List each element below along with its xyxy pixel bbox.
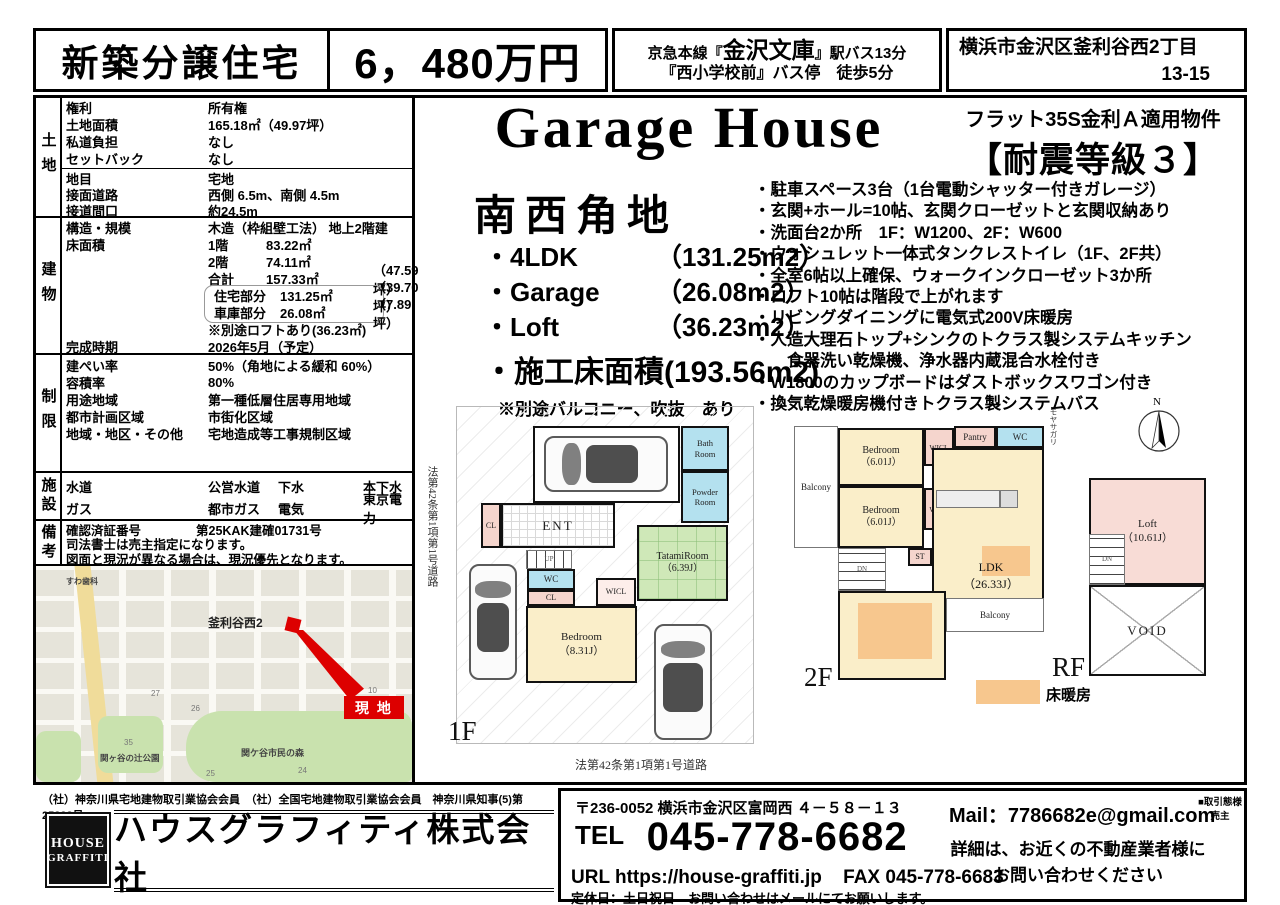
stairs-2f: DN [838, 548, 886, 591]
company-url: URL https://house-graffiti.jp [571, 867, 822, 888]
feature-item: 食器洗い乾燥機、浄水器内蔵混合水栓付き [754, 351, 1248, 372]
table-row: 権利所有権 [66, 99, 410, 116]
table-row: 建ぺい率50%（角地による緩和 60%） [66, 357, 410, 374]
map-number: 25 [206, 769, 215, 778]
inquiry-note: 詳細は、お近くの不動産業者様に お問い合わせください [949, 837, 1207, 888]
garage-house-title: Garage House [424, 94, 954, 161]
table-row: 用途地域第一種低層住居専用地域 [66, 391, 410, 408]
pantry-2f: Pantry [954, 426, 996, 448]
bathroom-1f: Bath Room [681, 426, 729, 471]
map-label-park: 関ヶ谷の辻公園 [100, 752, 160, 764]
location-map: すわ歯科 釜利谷西2 関ヶ谷の辻公園 関ケ谷市民の森 27 26 35 25 2… [36, 566, 412, 782]
north-label: N [1153, 396, 1161, 408]
bedroom-1f: Bedroom （8.31J） [526, 606, 637, 683]
table-row: 私道負担なし [66, 133, 410, 150]
map-number: 26 [191, 704, 200, 713]
void-rf: VOID [1089, 585, 1206, 676]
map-number: 10 [368, 686, 377, 695]
contact-box: 〒236-0052 横浜市金沢区富岡西 ４－５８－１３ TEL 045-778-… [558, 788, 1247, 902]
map-number: 24 [298, 766, 307, 775]
company-logo: HOUSE GRAFFITI [45, 812, 111, 888]
road-label-left: 法第42条第1項第1号道路 [424, 466, 440, 587]
map-site-label: 現 地 [344, 696, 404, 719]
table-row: 車庫部分26.08㎡（7.89坪） [66, 304, 410, 321]
feature-item: ・全室6帖以上確保、ウォークインクローゼット3か所 [754, 266, 1248, 287]
section-building: 建物 構造・規模木造（枠組壁工法） 地上2階建 床面積1階83.22㎡ 2階74… [36, 218, 412, 355]
tatami-room-1f: TatamiRoom （6.39J） [637, 525, 728, 601]
ldk-label: LDK （26.33J） [951, 560, 1031, 592]
price: 6，480万円 [330, 31, 605, 89]
header-left-box: 新築分譲住宅 6，480万円 [33, 28, 608, 92]
seismic-grade-label: 【耐震等級３】 [938, 132, 1248, 183]
map-label-district: 釜利谷西2 [208, 614, 263, 631]
access-line2: 『西小学校前』バス停 徒歩5分 [661, 64, 894, 84]
logo-text-house: HOUSE [51, 836, 105, 851]
table-row: 構造・規模木造（枠組壁工法） 地上2階建 [66, 219, 410, 236]
balcony-south-2f: Balcony [946, 598, 1044, 632]
car-in-garage [544, 436, 668, 492]
section-land: 土地 権利所有権 土地面積165.18㎡（49.97坪） 私道負担なし セットバ… [36, 98, 412, 218]
closet-1f: CL [481, 503, 501, 548]
floor-label-1f: 1F [448, 716, 477, 747]
feature-item: ・駐車スペース3台（1台電動シャッター付きガレージ） [754, 180, 1248, 201]
section-restrictions: 制限 建ぺい率50%（角地による緩和 60%） 容積率80% 用途地域第一種低層… [36, 355, 412, 473]
wc-1f: WC [527, 569, 575, 590]
feature-item: ・人造大理石トップ+シンクのトクラス製システムキッチン [754, 330, 1248, 351]
table-row: 接道間口約24.5m [66, 202, 410, 219]
stairs-1f: UP [526, 550, 572, 569]
access-box: 京急本線『金沢文庫』駅バス13分 『西小学校前』バス停 徒歩5分 [612, 28, 942, 92]
access-station: 金沢文庫 [723, 37, 815, 63]
feature-item: ・リビングダイニングに電気式200V床暖房 [754, 308, 1248, 329]
bedroom2-2f: Bedroom （6.01J） [838, 486, 924, 548]
address-box: 横浜市金沢区釜利谷西2丁目 13-15 [946, 28, 1247, 92]
feature-item: ・玄関+ホール=10帖、玄関クローゼットと玄関収納あり [754, 201, 1248, 222]
table-row: 地域・地区・その他宅地造成等工事規制区域 [66, 425, 410, 442]
powder-room-1f: Powder Room [681, 471, 729, 523]
floor-label-rf: RF [1052, 652, 1085, 683]
table-row: 図面と現況が異なる場合は、現況優先となります。 [66, 551, 410, 565]
access-pre: 京急本線『 [648, 45, 723, 62]
closet2-1f: CL [527, 590, 575, 606]
remarks-group-label: 備考 [36, 521, 62, 564]
tel-line: TEL 045-778-6682 [575, 815, 908, 860]
feature-item: ・洗面台2か所 1F：W1200、2F：W600 [754, 223, 1248, 244]
feature-item: ・W1800のカップボードはダストボックスワゴン付き [754, 373, 1248, 394]
floor-heating-legend-label: 床暖房 [1046, 684, 1091, 705]
flyer-page: 新築分譲住宅 6，480万円 京急本線『金沢文庫』駅バス13分 『西小学校前』バ… [0, 0, 1280, 905]
main-box: 土地 権利所有権 土地面積165.18㎡（49.97坪） 私道負担なし セットバ… [33, 95, 1247, 785]
flat35-block: フラット35S金利Ａ適用物件 【耐震等級３】 [938, 103, 1248, 183]
corner-lot-label: 南西角地 [474, 182, 678, 243]
company-name: ハウスグラフィティ株式会社 [114, 810, 554, 892]
mail-label: Mail： [949, 805, 1008, 827]
balcony-west-2f: Balcony [794, 426, 838, 548]
access-line1: 京急本線『金沢文庫』駅バス13分 [648, 36, 907, 65]
table-row: 都市計画区域市街化区域 [66, 408, 410, 425]
table-row: 完成時期2026年5月（予定） [66, 338, 410, 355]
section-remarks: 備考 確認済証番号第25KAK建確01731号 司法書士は売主指定になります。 … [36, 521, 412, 566]
table-row: ガス都市ガス電気東京電力 [66, 497, 410, 519]
building-group-label: 建物 [36, 218, 62, 353]
floor-heating-legend-swatch [976, 680, 1040, 704]
table-row: 水道公営水道下水本下水 [66, 475, 410, 497]
logo-text-graffiti: GRAFFITI [47, 852, 109, 864]
kitchen-stove [1000, 490, 1018, 508]
property-type: 新築分譲住宅 [36, 31, 330, 89]
price-value: 6，480万円 [354, 30, 580, 91]
feature-list: ・駐車スペース3台（1台電動シャッター付きガレージ） ・玄関+ホール=10帖、玄… [754, 180, 1248, 415]
wicl-1f: WICL [596, 578, 636, 606]
section-facilities: 施設 水道公営水道下水本下水 ガス都市ガス電気東京電力 [36, 473, 412, 521]
feature-item: ・ウォシュレット一体式タンクレストイレ（1F、2F共） [754, 244, 1248, 265]
url-fax-line: URL https://house-graffiti.jp FAX 045-77… [571, 867, 1004, 889]
storage-2f: ST [908, 548, 932, 566]
land-group-label: 土地 [36, 98, 62, 216]
table-row: 容積率80% [66, 374, 410, 391]
tel-number: 045-778-6682 [647, 815, 908, 859]
deal-type: ■取引態様 売主 [1195, 794, 1245, 822]
bedroom1-2f: Bedroom （6.01J） [838, 428, 924, 486]
map-number: 35 [124, 738, 133, 747]
floor-heating-patch [858, 603, 932, 659]
map-label-dental: すわ歯科 [66, 576, 98, 587]
address-line2: 13-15 [959, 62, 1234, 89]
map-site-arrow [294, 630, 364, 700]
facility-group-label: 施設 [36, 473, 62, 519]
map-label-forest: 関ケ谷市民の森 [241, 746, 304, 759]
kitchen-counter [936, 490, 1000, 508]
feature-item: ・ロフト10帖は階段で上がれます [754, 287, 1248, 308]
table-row: セットバックなし [66, 150, 410, 167]
map-number: 27 [151, 689, 160, 698]
mail-line: Mail：7786682e@gmail.com [949, 799, 1215, 828]
table-row: 床面積1階83.22㎡ [66, 236, 410, 253]
table-row: 2階74.11㎡ [66, 253, 410, 270]
table-row: 住宅部分131.25㎡（39.70坪） [66, 287, 410, 304]
table-row: 土地面積165.18㎡（49.97坪） [66, 116, 410, 133]
road-label-bottom: 法第42条第1項第1号道路 [491, 756, 791, 773]
holiday-line: 定休日：土日祝日 お問い合わせはメールにてお願いします。 [571, 888, 933, 905]
main-divider [412, 98, 415, 782]
compass-icon [1136, 408, 1182, 454]
mail-address: 7786682e@gmail.com [1008, 805, 1215, 827]
address-line1: 横浜市金沢区釜利谷西2丁目 [959, 35, 1234, 62]
entrance-1f: ENT [501, 503, 615, 548]
car-parking-left [469, 564, 517, 680]
tel-label: TEL [575, 820, 624, 850]
restrict-group-label: 制限 [36, 355, 62, 471]
access-post: 』駅バス13分 [815, 45, 907, 62]
property-type-label: 新築分譲住宅 [62, 33, 302, 87]
stairs-rf: DN [1089, 534, 1125, 585]
moyasagari-label: モヤサガリ [1048, 408, 1059, 446]
flat35-label: フラット35S金利Ａ適用物件 [938, 103, 1248, 132]
wc-2f: WC [996, 426, 1044, 448]
map-green [36, 731, 81, 782]
car-parking-right [654, 624, 712, 740]
floor-label-2f: 2F [804, 662, 833, 693]
table-row: ※別途ロフトあり(36.23㎡) [66, 321, 410, 338]
